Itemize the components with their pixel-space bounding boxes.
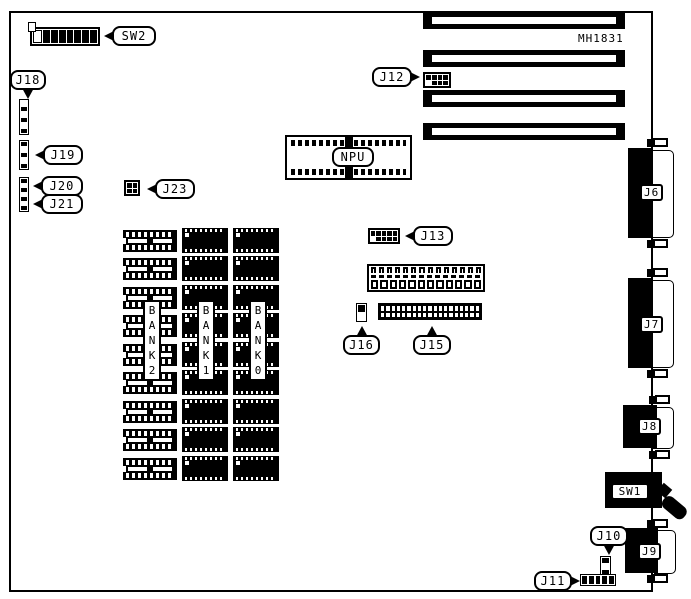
tag-j8: J8	[638, 418, 661, 435]
connector-j12	[423, 72, 451, 88]
connector-pin	[434, 313, 437, 318]
connector-pin	[443, 81, 448, 86]
header-pin	[21, 142, 27, 146]
connector-pin	[444, 313, 447, 318]
memory-chip	[182, 427, 228, 452]
pin-header-j20-j21	[19, 177, 29, 212]
header-pin	[602, 564, 609, 569]
header-pin	[21, 153, 27, 157]
edge-contact	[403, 267, 408, 273]
header-pin	[21, 107, 27, 112]
edge-contact	[444, 267, 449, 273]
header-pin	[21, 129, 27, 134]
edge-contact	[436, 267, 441, 273]
memory-chip	[233, 256, 279, 281]
edge-contact	[452, 267, 457, 273]
pin-header-j16	[356, 303, 367, 322]
memory-chip	[182, 256, 228, 281]
pin-header-j11	[580, 574, 616, 586]
dip-switch-position	[43, 30, 50, 43]
connector-pin	[438, 75, 443, 80]
connector-pin	[418, 313, 421, 318]
edge-socket	[436, 280, 443, 289]
edge-socket	[455, 280, 462, 289]
connector-pin	[432, 81, 437, 86]
header-pin	[21, 179, 27, 183]
connector-pin	[476, 313, 479, 318]
edge-socket	[380, 280, 387, 289]
edge-contact	[419, 267, 424, 273]
header-pin	[358, 305, 365, 312]
connector-pin	[413, 306, 416, 311]
memory-chip	[182, 456, 228, 481]
tag-j6: J6	[640, 184, 663, 201]
connector-pin	[387, 237, 391, 242]
memory-chip	[233, 427, 279, 452]
header-pin	[21, 193, 27, 197]
connector-pin	[376, 231, 380, 236]
memory-chip	[182, 399, 228, 424]
connector-pin	[397, 313, 400, 318]
expansion-slot	[423, 50, 625, 67]
connector-pin	[386, 306, 389, 311]
header-pin	[21, 188, 27, 192]
connector-pin	[423, 313, 426, 318]
connector-pin	[465, 313, 468, 318]
connector-j15	[378, 303, 482, 320]
dip-switch-position	[74, 30, 81, 43]
dip-switch-position	[82, 30, 89, 43]
dip-switch-position	[67, 30, 74, 43]
edge-contact	[411, 267, 416, 273]
memory-socket	[123, 401, 177, 423]
connector-pin	[413, 313, 416, 318]
memory-socket	[123, 230, 177, 252]
edge-socket	[371, 280, 378, 289]
callout-j21: J21	[41, 194, 83, 214]
connector-pin	[381, 313, 384, 318]
dip-switch-sw2-tab	[28, 22, 36, 32]
connector-pin	[423, 306, 426, 311]
edge-socket	[418, 280, 425, 289]
header-pin	[21, 184, 27, 188]
memory-socket	[123, 258, 177, 280]
connector-pin	[382, 237, 386, 242]
expansion-slot	[423, 90, 625, 107]
edge-socket	[408, 280, 415, 289]
memory-chip	[182, 228, 228, 253]
header-pin	[609, 576, 614, 584]
key-head	[660, 494, 690, 522]
expansion-slot-opening	[432, 128, 616, 135]
dip-switch-position	[51, 30, 58, 43]
connector-pin	[371, 231, 375, 236]
edge-connector-sockets	[371, 280, 481, 289]
edge-contact	[428, 267, 433, 273]
j9-screw-top	[647, 519, 668, 528]
connector-pin	[428, 306, 431, 311]
connector-pin	[460, 306, 463, 311]
connector-pin	[460, 313, 463, 318]
connector-pin	[133, 189, 138, 194]
connector-pin	[449, 306, 452, 311]
memory-socket	[123, 429, 177, 451]
edge-connector-contacts	[371, 267, 481, 273]
callout-j16: J16	[343, 335, 380, 355]
j7-screw-bottom	[647, 369, 668, 378]
callout-j19: J19	[43, 145, 83, 165]
connector-pin	[432, 75, 437, 80]
connector-pin	[444, 306, 447, 311]
j8-screw-top	[649, 395, 670, 404]
connector-pin	[127, 183, 132, 188]
connector-pin	[402, 313, 405, 318]
connector-pin	[133, 183, 138, 188]
edge-socket	[399, 280, 406, 289]
edge-contact	[460, 267, 465, 273]
callout-j18: J18	[10, 70, 46, 90]
connector-pin	[382, 231, 386, 236]
edge-contact	[379, 267, 384, 273]
tag-j7: J7	[640, 316, 663, 333]
callout-j15: J15	[413, 335, 451, 355]
connector-pin	[397, 306, 400, 311]
bank2-label: B A N K 2	[143, 300, 161, 381]
board-part-number: MH1831	[578, 32, 624, 45]
dip-switch-position	[59, 30, 66, 43]
edge-connector-divider	[371, 275, 481, 278]
connector-pin	[470, 313, 473, 318]
connector-pin	[438, 81, 443, 86]
motherboard-diagram: SW2 MH1831 J12 J18 J19 J20 J21 J23 NPU J…	[0, 0, 691, 599]
connector-pin	[402, 306, 405, 311]
header-pin	[589, 576, 594, 584]
j6-screw-bottom	[647, 239, 668, 248]
connector-pin	[387, 231, 391, 236]
callout-j12: J12	[372, 67, 412, 87]
header-pin	[358, 313, 365, 320]
connector-pin	[465, 306, 468, 311]
bank1-label: B A N K 1	[197, 300, 215, 381]
j8-screw-bottom	[649, 450, 670, 459]
header-pin	[21, 158, 27, 162]
callout-sw2: SW2	[112, 26, 156, 46]
j7-screw-top	[647, 268, 668, 277]
header-pin	[21, 164, 27, 168]
header-pin	[21, 101, 27, 106]
power-edge-connector	[367, 264, 485, 292]
edge-socket	[427, 280, 434, 289]
connector-j13	[368, 228, 400, 244]
header-pin	[21, 197, 27, 201]
header-pin	[21, 202, 27, 206]
connector-pin	[392, 306, 395, 311]
header-pin	[596, 576, 601, 584]
j9-screw-bottom	[647, 574, 668, 583]
edge-contact	[468, 267, 473, 273]
memory-chip	[233, 228, 279, 253]
connector-pin	[476, 306, 479, 311]
connector-pin	[371, 237, 375, 242]
expansion-slot-opening	[432, 17, 616, 24]
tag-sw1: SW1	[611, 483, 649, 500]
connector-pin	[392, 313, 395, 318]
tag-j9: J9	[638, 543, 661, 560]
header-pin	[21, 112, 27, 117]
dip-switch-sw2	[30, 27, 100, 46]
edge-contact	[371, 267, 376, 273]
connector-pin	[376, 237, 380, 242]
pin-header-j19	[19, 140, 29, 170]
connector-pin	[407, 313, 410, 318]
expansion-slot	[423, 123, 625, 140]
connector-pin	[393, 237, 397, 242]
connector-pin	[418, 306, 421, 311]
edge-socket	[390, 280, 397, 289]
connector-pin	[455, 313, 458, 318]
edge-socket	[464, 280, 471, 289]
edge-contact	[387, 267, 392, 273]
connector-pin	[439, 313, 442, 318]
header-pin	[21, 147, 27, 151]
edge-contact	[476, 267, 481, 273]
edge-socket	[474, 280, 481, 289]
edge-contact	[395, 267, 400, 273]
connector-pin	[470, 306, 473, 311]
connector-pin	[426, 75, 431, 80]
expansion-slot	[423, 12, 625, 29]
connector-pin	[449, 313, 452, 318]
dip-switch-position	[90, 30, 97, 43]
callout-npu: NPU	[332, 147, 374, 167]
connector-pin	[393, 231, 397, 236]
memory-chip	[233, 456, 279, 481]
callout-j13: J13	[413, 226, 453, 246]
expansion-slot-opening	[432, 55, 616, 62]
expansion-slot-opening	[432, 95, 616, 102]
callout-j11: J11	[534, 571, 572, 591]
memory-socket	[123, 458, 177, 480]
pin-header-j18	[19, 99, 29, 135]
header-pin	[21, 118, 27, 123]
header-pin	[582, 576, 587, 584]
npu-tab-bottom	[345, 167, 353, 178]
connector-j23	[124, 180, 140, 196]
connector-pin	[426, 81, 431, 86]
callout-j20: J20	[41, 176, 83, 196]
connector-pin	[455, 306, 458, 311]
connector-pin	[381, 306, 384, 311]
callout-j10: J10	[590, 526, 628, 546]
bank0-label: B A N K 0	[249, 300, 267, 381]
header-pin	[602, 576, 607, 584]
memory-chip	[233, 399, 279, 424]
edge-socket	[446, 280, 453, 289]
connector-pin	[407, 306, 410, 311]
header-pin	[21, 206, 27, 210]
connector-pin	[428, 313, 431, 318]
connector-pin	[434, 306, 437, 311]
connector-pin	[443, 75, 448, 80]
header-pin	[602, 558, 609, 563]
header-pin	[21, 123, 27, 128]
connector-pin	[439, 306, 442, 311]
connector-pin	[127, 189, 132, 194]
j6-screw-top	[647, 138, 668, 147]
callout-j23: J23	[155, 179, 195, 199]
connector-pin	[386, 313, 389, 318]
